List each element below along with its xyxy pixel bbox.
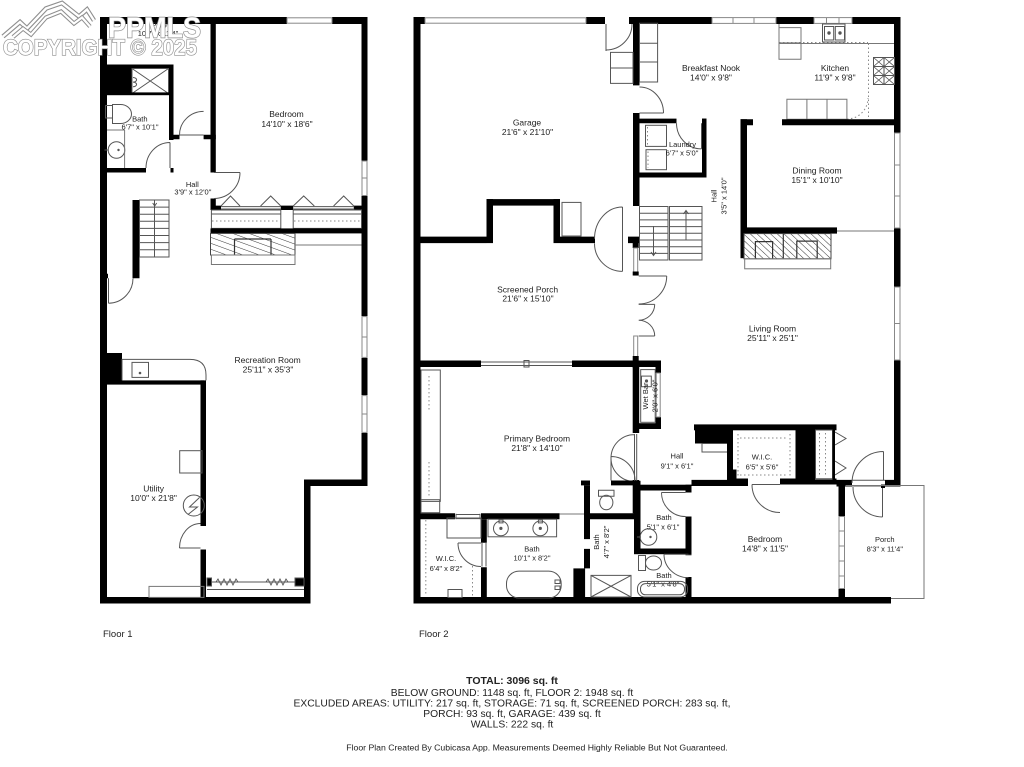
- svg-text:15'1" x 10'10": 15'1" x 10'10": [791, 175, 842, 185]
- svg-text:Bedroom: Bedroom: [269, 109, 304, 119]
- svg-text:Dining Room: Dining Room: [792, 166, 841, 176]
- svg-text:PORCH: 93 sq. ft, GARAGE: 439: PORCH: 93 sq. ft, GARAGE: 439 sq. ft: [423, 709, 601, 720]
- svg-text:9'1" x 6'1": 9'1" x 6'1": [661, 462, 694, 471]
- svg-text:Utility: Utility: [143, 484, 165, 494]
- svg-text:Garage: Garage: [513, 118, 542, 128]
- svg-text:14'8" x 11'5": 14'8" x 11'5": [742, 543, 788, 553]
- svg-text:3'9" x 12'0": 3'9" x 12'0": [174, 187, 211, 196]
- svg-text:Porch: Porch: [875, 535, 895, 544]
- svg-text:25'11" x 25'1": 25'11" x 25'1": [747, 333, 798, 343]
- svg-text:BELOW GROUND: 1148 sq. ft, FLO: BELOW GROUND: 1148 sq. ft, FLOOR 2: 1948…: [391, 688, 634, 699]
- svg-text:WALLS: 222 sq. ft: WALLS: 222 sq. ft: [471, 720, 554, 731]
- svg-text:Living Room: Living Room: [749, 324, 796, 334]
- svg-text:14'10" x 18'6": 14'10" x 18'6": [261, 119, 312, 129]
- svg-text:Bath: Bath: [524, 545, 539, 554]
- svg-text:Bath: Bath: [656, 513, 671, 522]
- svg-text:TOTAL: 3096 sq. ft: TOTAL: 3096 sq. ft: [466, 675, 558, 687]
- svg-text:6'7" x 5'0": 6'7" x 5'0": [666, 148, 699, 157]
- svg-text:Wet Bar: Wet Bar: [641, 382, 650, 409]
- svg-text:3'5" x 14'0": 3'5" x 14'0": [720, 177, 729, 214]
- svg-text:21'8" x 14'10": 21'8" x 14'10": [511, 443, 562, 453]
- svg-text:21'6" x 15'10": 21'6" x 15'10": [502, 294, 553, 304]
- svg-text:10'0" x 21'8": 10'0" x 21'8": [130, 493, 177, 503]
- svg-text:COPYRIGHT © 2025: COPYRIGHT © 2025: [3, 35, 197, 60]
- svg-text:4'7" x 8'2": 4'7" x 8'2": [602, 525, 611, 558]
- svg-text:Hall: Hall: [671, 452, 684, 461]
- svg-text:14'0" x 9'8": 14'0" x 9'8": [690, 72, 732, 82]
- svg-text:W.I.C.: W.I.C.: [436, 554, 456, 563]
- svg-text:Floor 1: Floor 1: [103, 629, 133, 640]
- svg-text:W.I.C.: W.I.C.: [752, 453, 772, 462]
- svg-text:Floor Plan Created By Cubicasa: Floor Plan Created By Cubicasa App. Meas…: [346, 743, 727, 753]
- svg-text:6'7" x 10'1": 6'7" x 10'1": [122, 123, 159, 132]
- svg-text:6'5" x 5'6": 6'5" x 5'6": [746, 463, 779, 472]
- svg-text:2'0" x 6'0": 2'0" x 6'0": [651, 379, 660, 412]
- svg-text:21'6" x 21'10": 21'6" x 21'10": [502, 127, 553, 137]
- svg-text:Hall: Hall: [710, 189, 719, 202]
- svg-text:Bath: Bath: [592, 534, 601, 549]
- svg-text:10'1" x 8'2": 10'1" x 8'2": [514, 553, 551, 562]
- svg-text:6'4" x 8'2": 6'4" x 8'2": [430, 564, 463, 573]
- svg-text:Floor 2: Floor 2: [419, 629, 449, 640]
- svg-text:25'11" x 35'3": 25'11" x 35'3": [243, 364, 294, 374]
- svg-text:11'9" x 9'8": 11'9" x 9'8": [814, 72, 855, 82]
- svg-text:8'3" x 11'4": 8'3" x 11'4": [867, 545, 904, 554]
- svg-text:EXCLUDED AREAS: UTILITY: 217 s: EXCLUDED AREAS: UTILITY: 217 sq. ft, STO…: [293, 699, 730, 710]
- svg-text:5'1" x 6'1": 5'1" x 6'1": [647, 523, 680, 532]
